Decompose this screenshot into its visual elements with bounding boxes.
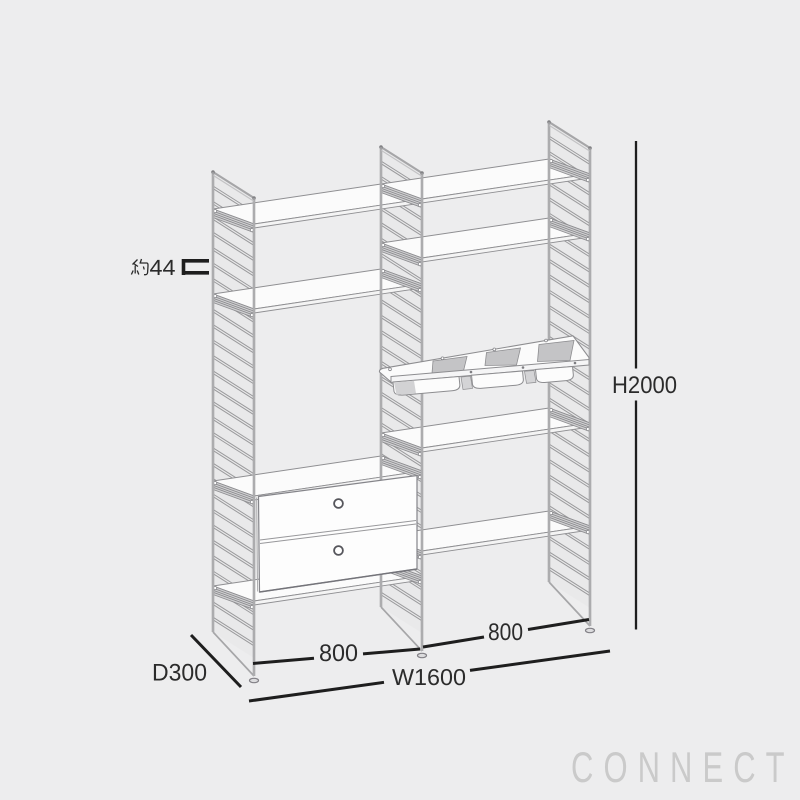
svg-text:CONNECT: CONNECT [571,744,795,792]
svg-text:H2000: H2000 [612,372,677,399]
svg-text:W1600: W1600 [392,664,466,690]
svg-text:D300: D300 [152,660,207,687]
svg-text:800: 800 [488,619,523,646]
svg-text:800: 800 [319,640,358,667]
svg-text:44: 44 [150,255,176,280]
